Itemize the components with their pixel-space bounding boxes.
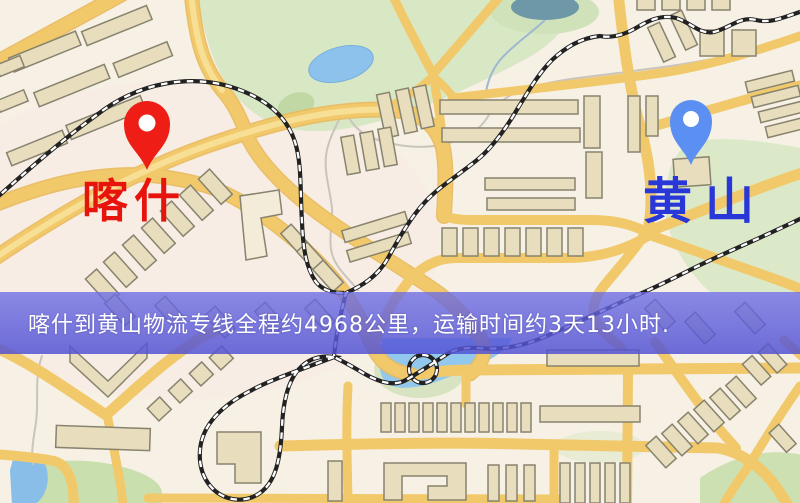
destination-city-label: 黄山	[643, 177, 767, 226]
route-info-text: 喀什到黄山物流专线全程约4968公里，运输时间约3天13小时.	[28, 307, 670, 339]
route-info-banner: 喀什到黄山物流专线全程约4968公里，运输时间约3天13小时.	[0, 292, 800, 354]
map-viewport[interactable]: 喀什到黄山物流专线全程约4968公里，运输时间约3天13小时. 喀什 黄山	[0, 0, 800, 503]
map-canvas	[0, 0, 800, 503]
origin-city-label: 喀什	[82, 178, 186, 224]
